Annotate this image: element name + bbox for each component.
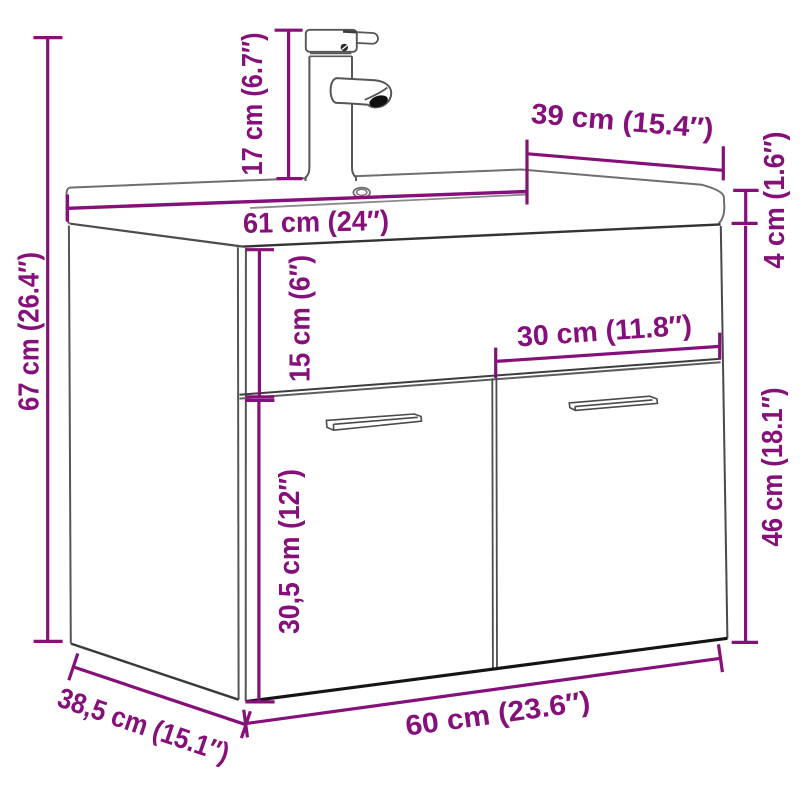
svg-text:15 cm (6″): 15 cm (6″) bbox=[285, 255, 317, 382]
svg-text:30,5 cm (12″): 30,5 cm (12″) bbox=[274, 469, 306, 634]
svg-text:4 cm (1.6″): 4 cm (1.6″) bbox=[759, 132, 791, 269]
svg-text:61 cm (24″): 61 cm (24″) bbox=[243, 205, 390, 240]
svg-text:46 cm (18.1″): 46 cm (18.1″) bbox=[757, 388, 789, 547]
svg-text:67 cm (26.4″): 67 cm (26.4″) bbox=[14, 252, 46, 411]
svg-text:17 cm (6.7″): 17 cm (6.7″) bbox=[237, 33, 269, 176]
